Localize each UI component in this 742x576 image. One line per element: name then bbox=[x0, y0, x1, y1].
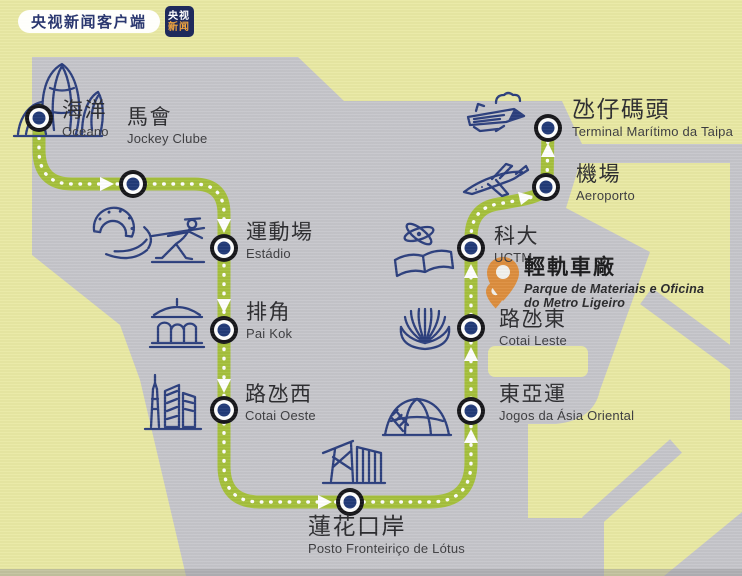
station-label-jockey-clube: 馬會 Jockey Clube bbox=[127, 106, 207, 146]
station-marker-jogos bbox=[457, 397, 485, 425]
station-marker-estadio bbox=[210, 234, 238, 262]
station-marker-cotai-leste bbox=[457, 314, 485, 342]
station-label-cotai-leste: 路氹東 Cotai Leste bbox=[499, 308, 567, 348]
station-label-estadio: 運動場 Estádio bbox=[246, 221, 314, 261]
station-label-cotai-oeste: 路氹西 Cotai Oeste bbox=[245, 383, 316, 423]
watermark-app-name: 央视新闻客户端 bbox=[18, 10, 160, 33]
station-marker-oceano bbox=[25, 104, 53, 132]
station-marker-lotus bbox=[336, 488, 364, 516]
station-label-jogos: 東亞運 Jogos da Ásia Oriental bbox=[499, 383, 634, 423]
news-map-screenshot: 海洋 Oceano 馬會 Jockey Clube 運動場 Estádio 排角… bbox=[0, 0, 742, 576]
station-marker-pai-kok bbox=[210, 316, 238, 344]
station-label-aeroporto: 機場 Aeroporto bbox=[576, 163, 635, 203]
cctv-news-watermark: 央视新闻客户端 央视 新闻 bbox=[18, 6, 194, 37]
station-marker-jockey-clube bbox=[119, 170, 147, 198]
station-label-oceano: 海洋 Oceano bbox=[62, 99, 109, 139]
station-marker-aeroporto bbox=[532, 173, 560, 201]
cctv-news-logo: 央视 新闻 bbox=[165, 6, 194, 37]
station-marker-cotai-oeste bbox=[210, 396, 238, 424]
depot-label: 輕軌車廠 Parque de Materiais e Oficina do Me… bbox=[524, 256, 704, 310]
station-marker-uctm bbox=[457, 234, 485, 262]
station-marker-terminal bbox=[534, 114, 562, 142]
station-label-pai-kok: 排角 Pai Kok bbox=[246, 301, 292, 341]
station-label-lotus: 蓮花口岸 Posto Fronteiriço de Lótus bbox=[308, 514, 465, 556]
station-label-terminal: 氹仔碼頭 Terminal Marítimo da Taipa bbox=[572, 97, 733, 139]
